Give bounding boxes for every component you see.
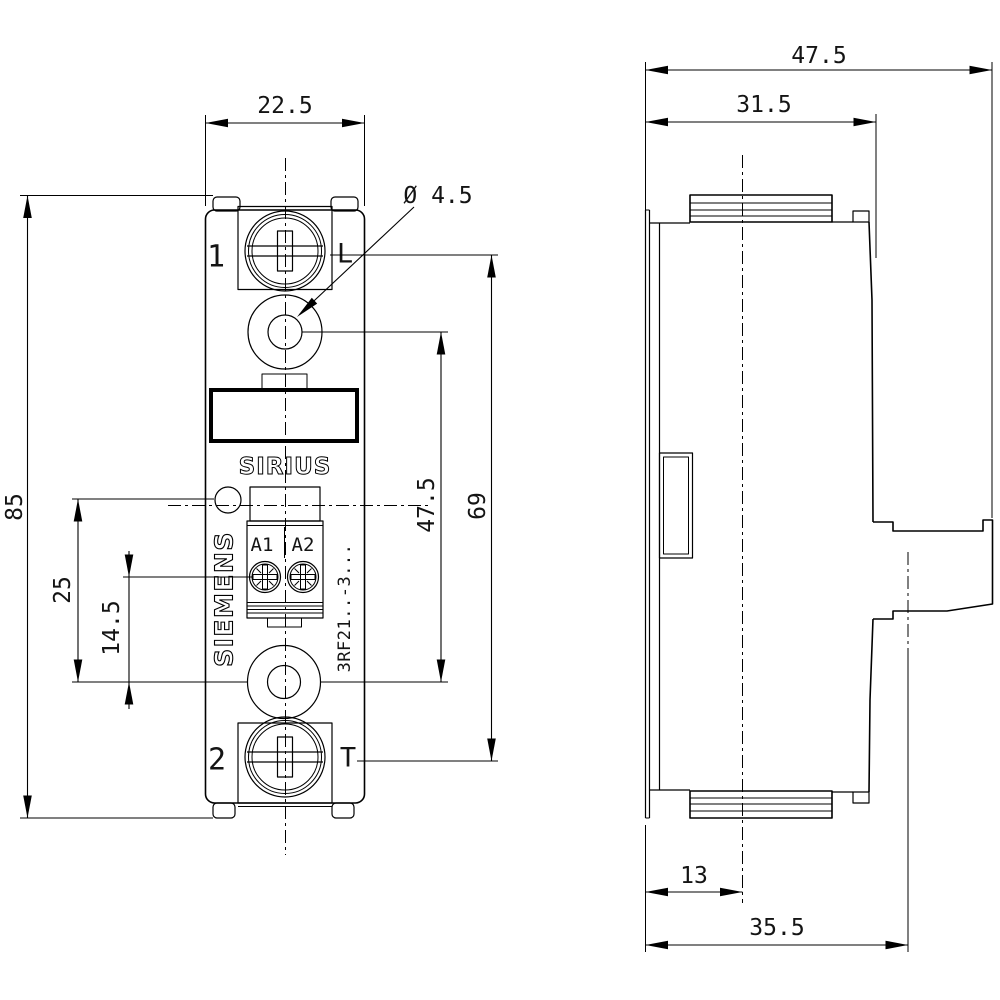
front-lower-mounting-hole [248,646,321,719]
side-bottom-cap [690,791,869,818]
control-screw-a1 [250,562,281,593]
dim-hole-spacing-value: 47.5 [414,477,440,532]
terminal-T-label: T [340,743,356,774]
dim-front-height: 85 [2,196,213,819]
dim-front-to-center: 13 [646,825,743,952]
dimension-drawing-canvas: 1 L SIRIUS A1 A2 [0,0,1000,1000]
dim-hole-spacing: 47.5 [302,332,448,682]
din-rail-clip [873,520,993,619]
dim-led-to-hole-value: 25 [50,576,76,604]
dim-terminal-spacing-value: 69 [465,492,491,520]
heatsink-neck [262,374,307,390]
leader-arrow [297,298,317,317]
front-view: 1 L SIRIUS A1 A2 [168,158,432,855]
side-rear-edge-lower [869,619,873,792]
front-top-terminal: 1 L [207,207,353,292]
side-view-dimensions: 47.5 31.5 13 35.5 [646,43,993,952]
heatsink-block [211,390,357,441]
side-top-cap [690,195,869,222]
dim-front-width-value: 22.5 [257,93,312,119]
dim-hole-diameter-value: Ø 4.5 [403,183,472,209]
brand-label: SIEMENS [210,531,239,667]
dim-side-body-depth: 31.5 [646,92,877,258]
front-foot-left [213,803,235,818]
terminal-1-label: 1 [207,240,225,275]
front-foot-right [332,803,354,818]
series-label: SIRIUS [239,454,332,480]
model-label: 3RF21..-3... [335,544,355,673]
drawing-page: 1 L SIRIUS A1 A2 [0,0,1000,1000]
status-led [215,487,241,513]
control-a2-label: A2 [292,534,315,556]
dim-led-to-hole: 25 [50,499,214,682]
front-heatsink-plate [211,374,357,441]
dim-front-to-rail-value: 35.5 [749,915,804,941]
dim-front-height-value: 85 [2,493,28,521]
side-bottom-tab [853,792,869,803]
side-rear-edge-upper [869,222,873,522]
front-control-block: A1 A2 [247,487,323,627]
dim-front-to-center-value: 13 [680,863,708,889]
dim-side-depth-value: 47.5 [791,43,846,69]
control-screw-a2 [288,562,319,593]
side-top-tab [853,211,869,222]
dim-coil-to-hole-value: 14.5 [99,600,125,655]
terminal-L-label: L [337,239,353,270]
dim-hole-diameter: Ø 4.5 [297,183,473,317]
dim-side-body-depth-value: 31.5 [736,92,791,118]
terminal-2-label: 2 [208,743,226,778]
front-top-tab-right [331,197,358,211]
front-bottom-terminal: 2 T [208,717,356,807]
side-view [646,155,993,903]
control-a1-label: A1 [251,534,274,556]
side-window [660,453,693,558]
side-front-plate [646,210,691,818]
front-top-tab-left [213,197,240,211]
control-block-notch [268,618,302,627]
dim-side-depth: 47.5 [646,43,993,518]
